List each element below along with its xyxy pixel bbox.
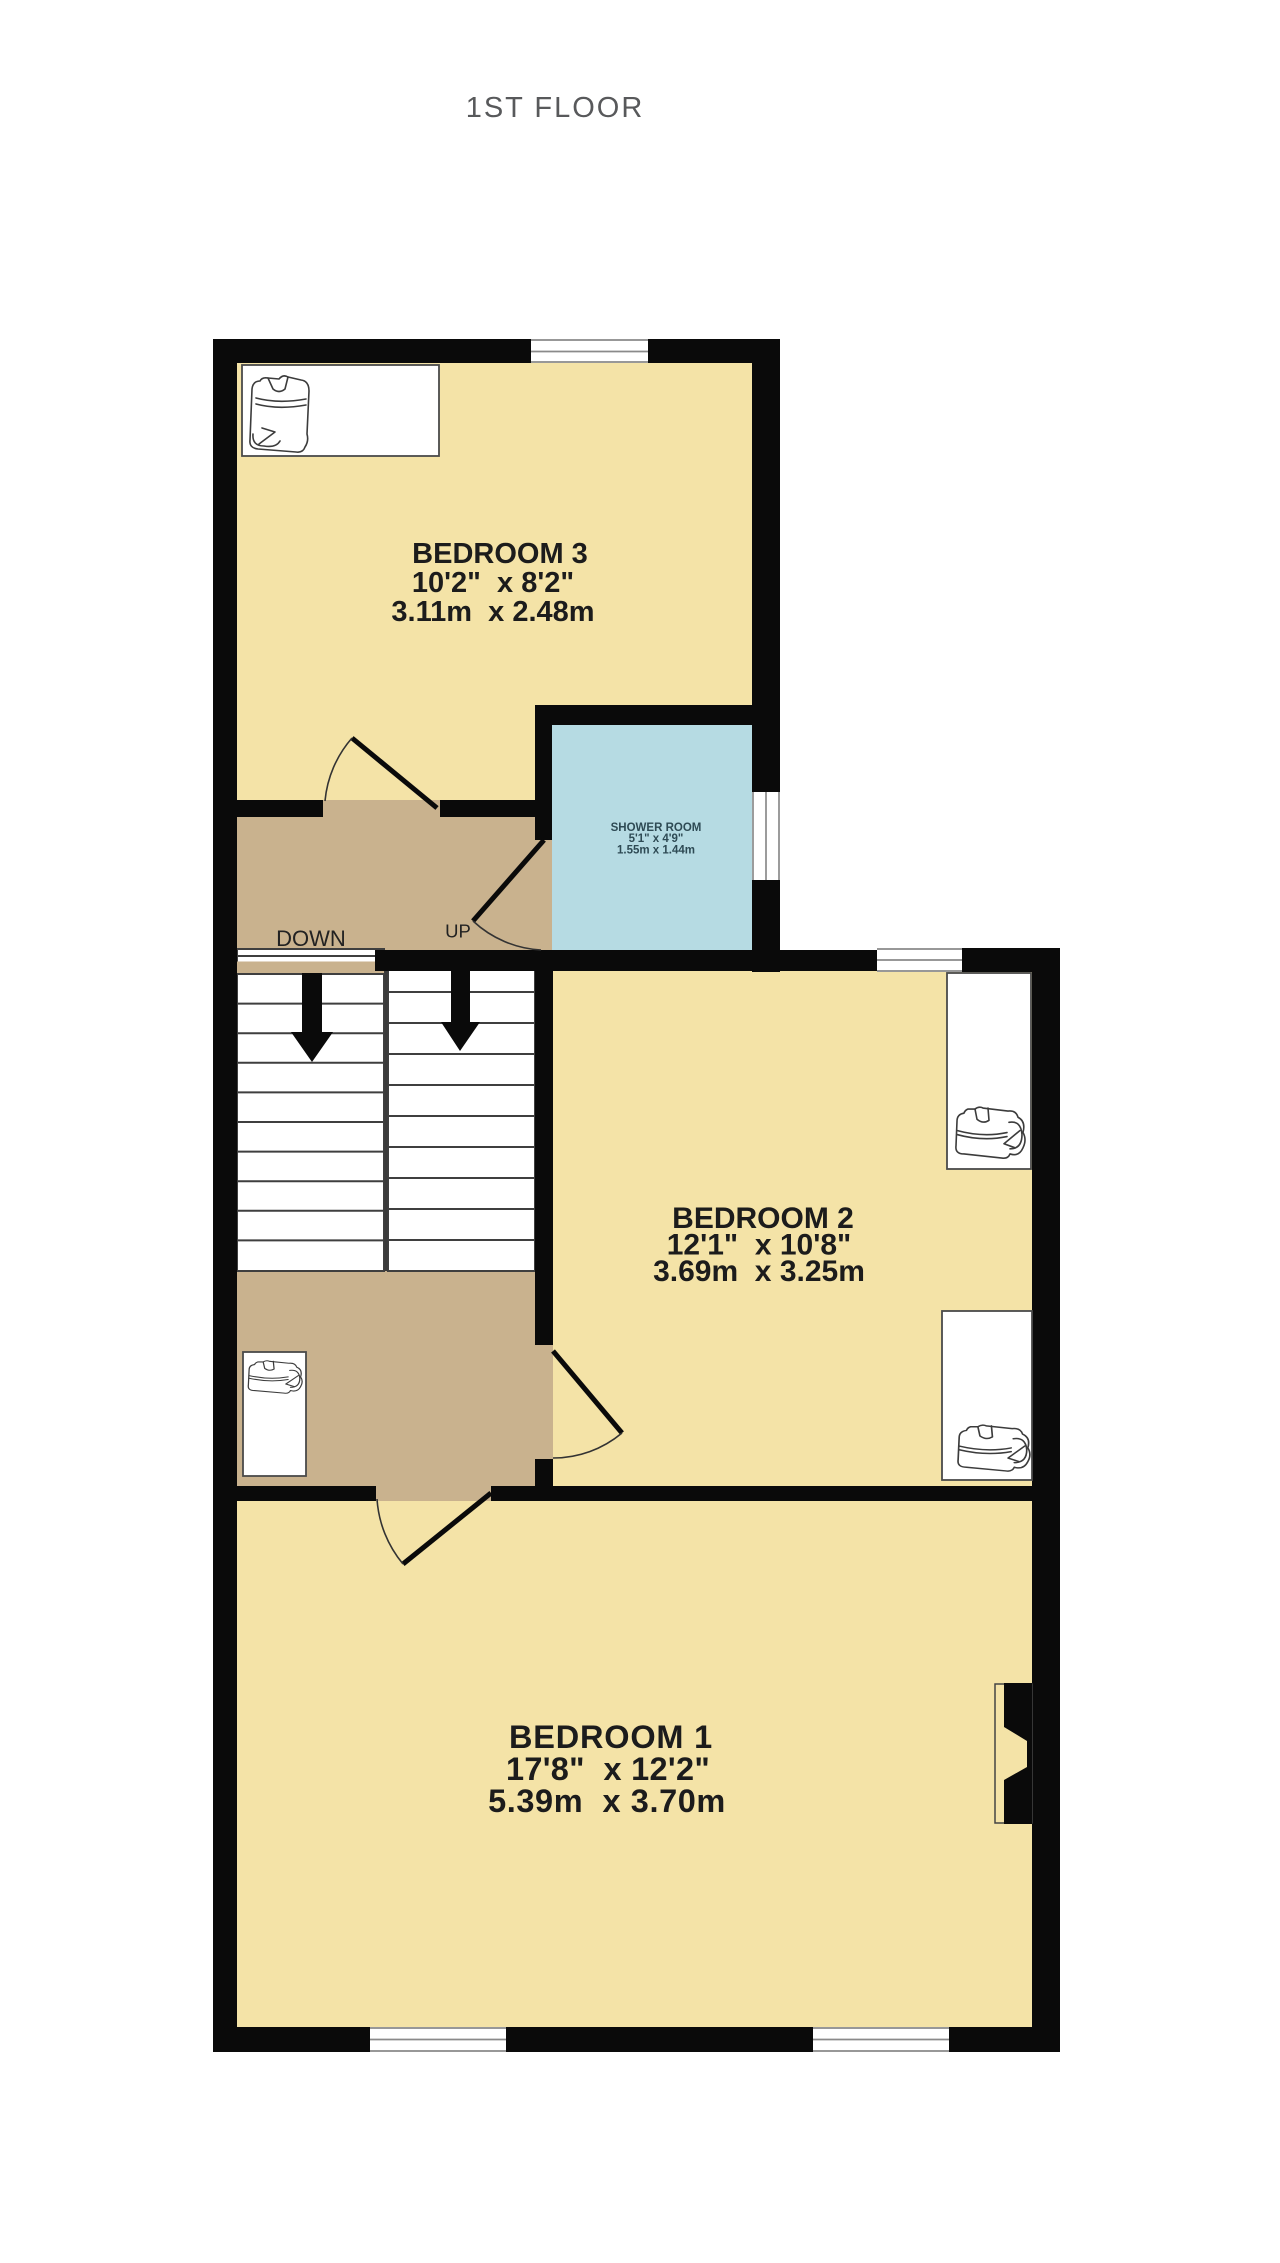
svg-text:DOWN: DOWN (276, 926, 346, 951)
svg-text:1.55m x 1.44m: 1.55m x 1.44m (617, 845, 695, 857)
svg-text:5'1" x 4'9": 5'1" x 4'9" (629, 833, 684, 845)
svg-text:5.39m x 3.70m: 5.39m x 3.70m (488, 1783, 726, 1819)
svg-text:UP: UP (445, 921, 471, 942)
svg-text:3.69m x 3.25m: 3.69m x 3.25m (653, 1255, 865, 1288)
svg-text:BEDROOM 1: BEDROOM 1 (509, 1719, 713, 1755)
svg-text:BEDROOM 3: BEDROOM 3 (412, 538, 588, 570)
svg-text:10'2" x 8'2": 10'2" x 8'2" (412, 567, 574, 599)
svg-text:3.11m x 2.48m: 3.11m x 2.48m (391, 596, 594, 628)
svg-text:17'8" x 12'2": 17'8" x 12'2" (506, 1751, 710, 1787)
svg-text:1ST FLOOR: 1ST FLOOR (466, 92, 645, 124)
